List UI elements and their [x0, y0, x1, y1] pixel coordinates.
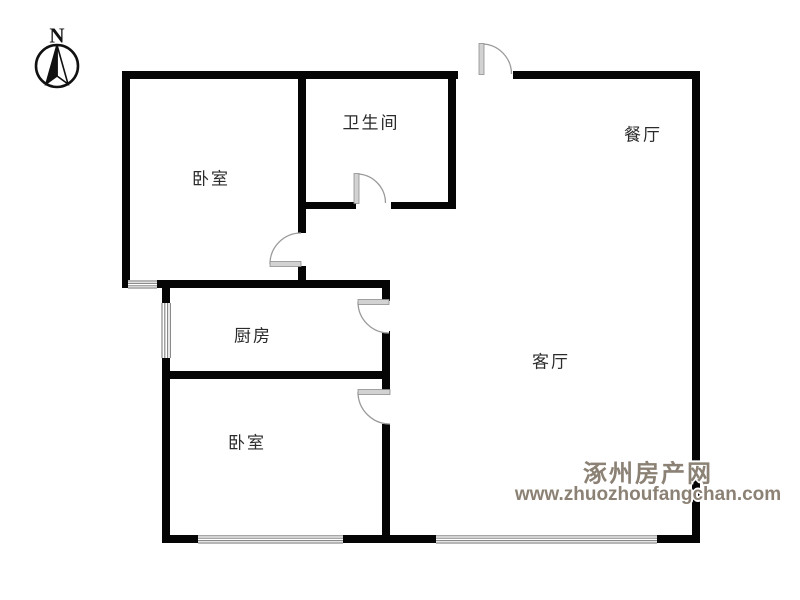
- door-bedroom-top: [270, 233, 301, 267]
- room-label-bedroom-top: 卧室: [192, 165, 230, 190]
- room-label-bedroom-bottom: 卧室: [228, 429, 266, 454]
- window-top-bedroom: [128, 280, 157, 288]
- door-bedroom-bottom: [358, 390, 390, 425]
- room-label-kitchen: 厨房: [234, 322, 272, 347]
- door-bathroom: [354, 174, 386, 204]
- north-compass-icon: [36, 45, 78, 87]
- room-label-bathroom: 卫生间: [343, 109, 400, 134]
- window-living-room: [436, 535, 657, 543]
- compass-north-label: N: [49, 24, 64, 49]
- window-bottom-bedroom: [198, 535, 343, 543]
- door-entrance: [479, 44, 512, 75]
- room-label-dining-room: 餐厅: [624, 121, 662, 146]
- watermark-site-url: www.zhuozhoufangchan.com: [515, 484, 781, 506]
- window-kitchen: [161, 303, 171, 358]
- floorplan-drawing: [0, 0, 800, 600]
- room-label-living-room: 客厅: [532, 348, 570, 373]
- floorplan-canvas: N 卧室 卫生间 餐厅 厨房 客厅 卧室 涿州房产网 www.zhuozhouf…: [0, 0, 800, 600]
- door-kitchen: [358, 300, 389, 334]
